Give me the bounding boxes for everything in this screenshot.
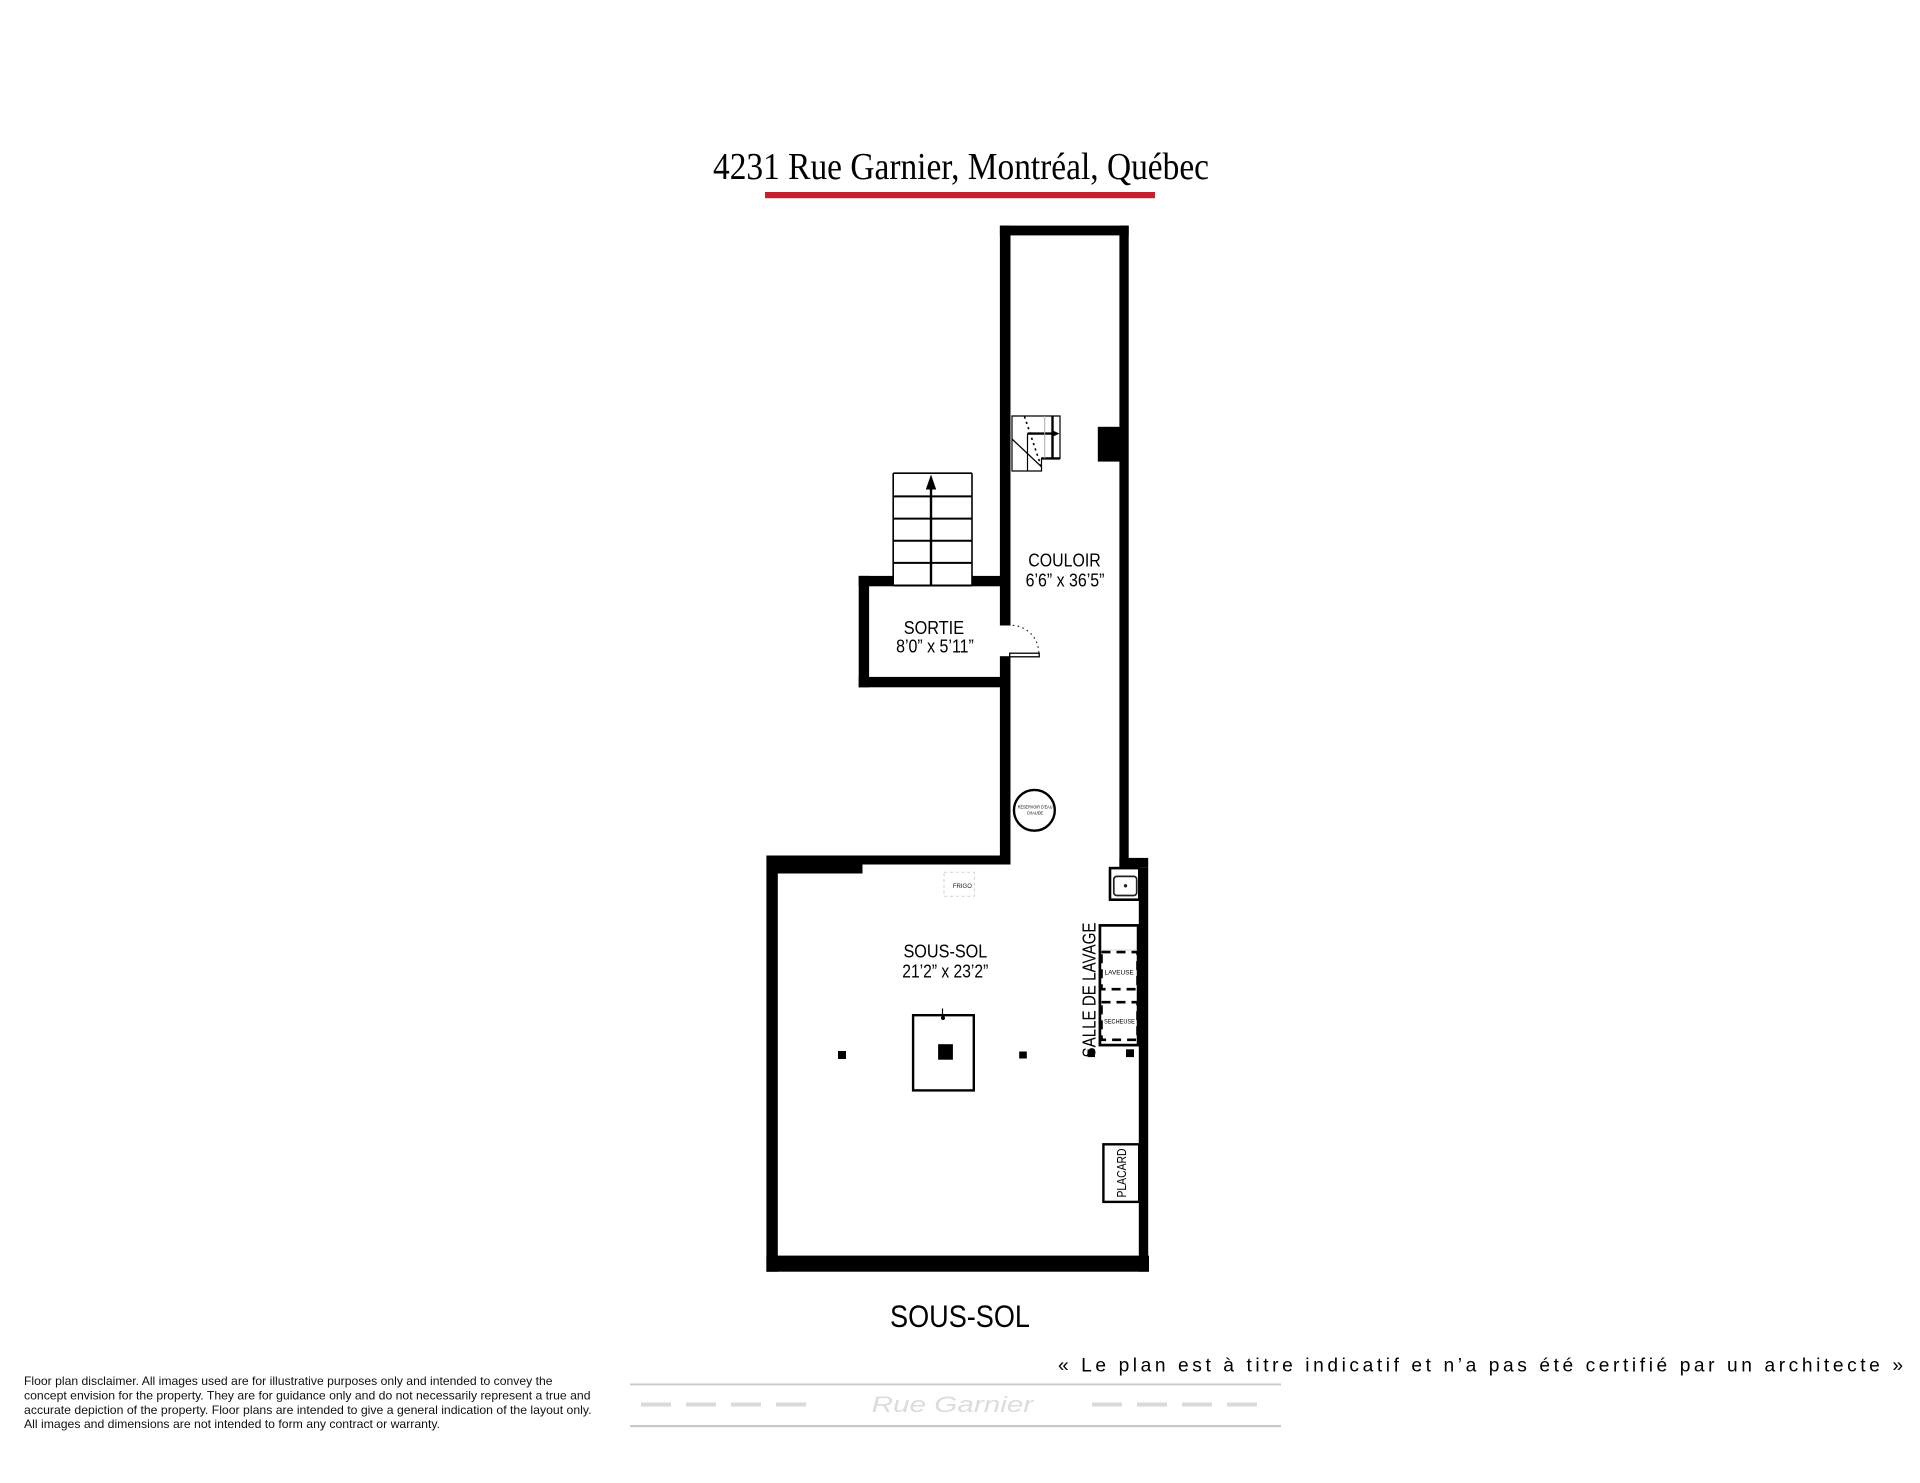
svg-text:accurate depiction of the prop: accurate depiction of the property. Floo… [24, 1404, 592, 1417]
svg-text:SOUS-SOL: SOUS-SOL [903, 941, 987, 962]
svg-text:COULOIR: COULOIR [1028, 550, 1101, 571]
svg-text:6’6” x 36’5”: 6’6” x 36’5” [1026, 570, 1105, 591]
svg-text:4231 Rue Garnier, Montréal, Qu: 4231 Rue Garnier, Montréal, Québec [713, 146, 1209, 188]
svg-text:LAVEUSE: LAVEUSE [1105, 969, 1135, 976]
svg-text:Rue Garnier: Rue Garnier [872, 1392, 1036, 1417]
svg-text:CHAUDE: CHAUDE [1027, 811, 1043, 816]
svg-text:FRIGO: FRIGO [953, 883, 972, 890]
svg-text:Floor plan disclaimer. All ima: Floor plan disclaimer. All images used a… [24, 1375, 553, 1388]
svg-text:21’2” x 23’2”: 21’2” x 23’2” [902, 961, 988, 982]
svg-text:PLACARD: PLACARD [1115, 1149, 1129, 1198]
svg-text:SOUS-SOL: SOUS-SOL [890, 1298, 1030, 1334]
svg-text:All images and dimensions are: All images and dimensions are not intend… [24, 1418, 440, 1431]
svg-text:« Le plan est à titre indicati: « Le plan est à titre indicatif et n’a p… [1058, 1356, 1903, 1377]
svg-text:concept envision for the prope: concept envision for the property. They … [24, 1389, 591, 1402]
svg-text:8’0” x 5’11”: 8’0” x 5’11” [896, 637, 974, 657]
svg-text:RÉSERVOIR D’EAU: RÉSERVOIR D’EAU [1018, 804, 1053, 810]
svg-text:SECHEUSE: SECHEUSE [1104, 1019, 1135, 1026]
svg-text:SORTIE: SORTIE [904, 618, 964, 638]
svg-text:SALLE DE LAVAGE: SALLE DE LAVAGE [1080, 923, 1100, 1058]
